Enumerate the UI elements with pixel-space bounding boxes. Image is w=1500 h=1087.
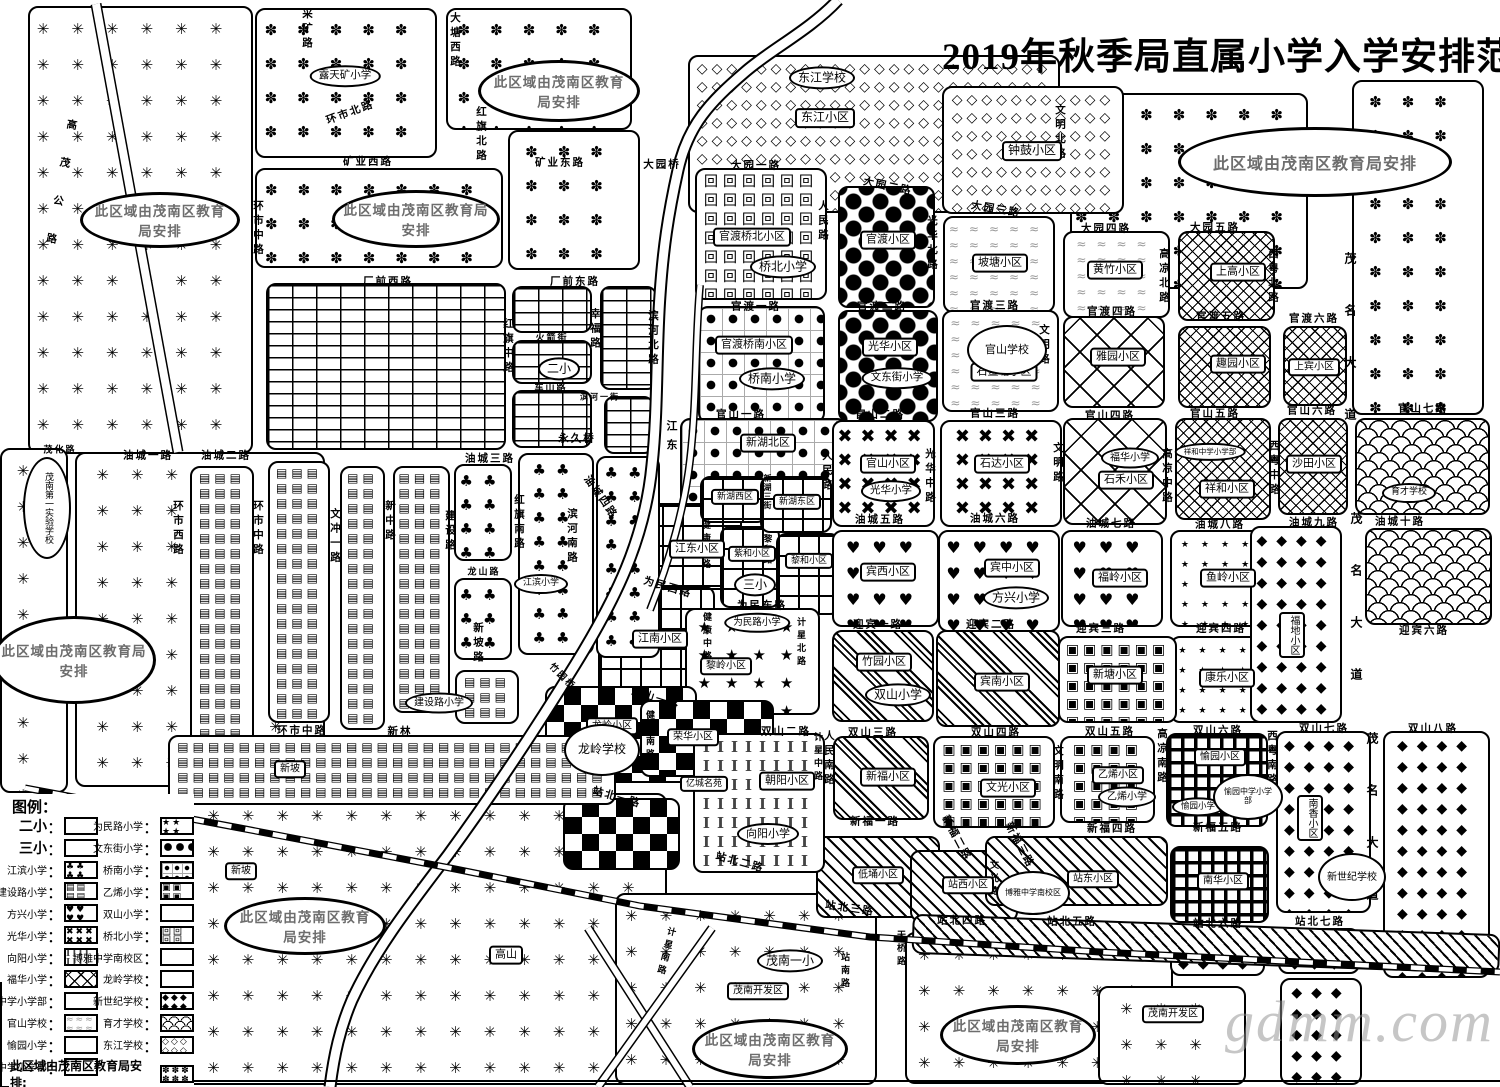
legend-footer: 此区域由茂南区教育局安排: ✽✽✽✽✽✽✽✽✽✽✽✽✽✽✽✽✽✽✽✽✽✽✽✽✽✽… xyxy=(10,1057,194,1087)
legend: 图例： 二小： 三小： 江滨小学：♣♣♣♣♣♣♣♣♣♣♣♣♣♣♣♣♣♣♣♣♣♣♣… xyxy=(2,794,194,1086)
road-label: 厂前西路 xyxy=(363,274,413,289)
block-label: 钟鼓小区 xyxy=(1002,141,1062,161)
legend-colon: ： xyxy=(143,1011,159,1035)
legend-swatch-maple: ♣♣♣♣♣♣♣♣♣♣♣♣♣♣♣♣♣♣♣♣♣♣♣♣♣♣♣♣♣♣♣♣♣♣♣♣♣♣♣♣… xyxy=(64,861,98,879)
block-label: 宾中小区 xyxy=(984,559,1040,578)
school-oval: 桥南小学 xyxy=(739,367,805,390)
road-label: 双山七路 xyxy=(1299,721,1349,736)
district-note-oval: 此区域由茂南区教育局安排 xyxy=(224,897,386,955)
road-label: 双山四路 xyxy=(971,725,1021,740)
block-label: 新坡 xyxy=(274,760,306,778)
road-label: 龙山路 xyxy=(467,565,500,578)
legend-item-label: 双山小学 xyxy=(103,906,143,921)
road-label: 油城一路 xyxy=(123,448,173,463)
block-label: 康乐小区 xyxy=(1199,669,1255,688)
legend-swatch-diamonds: ◆◆◆◆◆◆◆◆◆◆◆◆◆◆◆◆◆◆◆◆◆◆◆◆◆◆◆◆◆◆◆◆◆◆◆◆◆◆◆◆… xyxy=(160,992,194,1010)
legend-item-label: 桥北小学 xyxy=(103,928,143,943)
legend-colon: ： xyxy=(47,901,63,925)
district-note-oval: 此区域由茂南区教育局安排 xyxy=(1178,127,1452,197)
block-label: 紫和小区 xyxy=(728,546,776,562)
map-region xyxy=(512,286,592,333)
road-label: 迎宾二路 xyxy=(966,617,1016,632)
legend-item-label: 祥和中学小学部 xyxy=(0,993,47,1008)
block-label: 荣华小区 xyxy=(667,728,719,746)
road-label: 环市中路 xyxy=(277,723,327,738)
bridge-label: 永久桥 xyxy=(558,431,596,446)
school-oval: 桥北小学 xyxy=(750,255,816,278)
school-oval: 茂南一小 xyxy=(757,949,823,972)
legend-colon: ： xyxy=(47,814,63,838)
legend-item-label: 建设路小学 xyxy=(0,884,47,899)
map-region xyxy=(563,798,680,870)
map-region: ♣♣♣♣♣♣♣♣♣♣♣♣♣♣♣♣♣♣♣♣♣♣♣♣♣♣♣♣♣♣♣♣♣♣♣♣♣♣♣♣… xyxy=(454,464,512,561)
road-label: 高凉中路 xyxy=(1160,448,1175,506)
road-label: 油城九路 xyxy=(1289,515,1339,530)
legend-swatch-circle-chain: ◇◇◇◇◇◇◇◇◇◇◇◇◇◇◇◇◇◇◇◇◇◇◇◇◇◇◇◇◇◇◇◇◇◇◇◇◇◇◇◇… xyxy=(160,1036,194,1054)
legend-colon: ： xyxy=(47,1033,63,1057)
road-label: 油城十路 xyxy=(1375,514,1425,529)
block-label: 官山小区 xyxy=(860,455,916,474)
legend-footer-text: 此区域由茂南区教育局安排: xyxy=(10,1057,155,1087)
road-label: 迎宾四路 xyxy=(1196,621,1246,636)
road-label: 天桥路 xyxy=(894,930,907,969)
road-label: 油城三路 xyxy=(465,451,515,466)
block-label: 愉园小区 xyxy=(1194,748,1246,766)
legend-item-label: 文东街小学 xyxy=(93,840,143,855)
road-label: 站北七路 xyxy=(1295,914,1345,929)
legend-swatch-checker xyxy=(160,970,194,988)
road-label: 站北六路 xyxy=(1193,916,1243,931)
road-label: 新福四路 xyxy=(1087,821,1137,836)
map-region: ✽✽✽✽✽✽✽✽✽✽✽✽✽✽✽✽✽✽✽✽✽✽✽✽✽✽✽✽✽✽✽✽✽✽✽✽✽✽✽✽… xyxy=(508,130,640,270)
block-label: 坡塘小区 xyxy=(972,254,1028,273)
district-note-oval: 此区域由茂南区教育局安排 xyxy=(692,1019,848,1079)
road-label: 油城八路 xyxy=(1195,517,1245,532)
road-label: 茂名大道 xyxy=(1364,732,1381,940)
road-label: 官山二路 xyxy=(855,407,905,422)
map-region: ▤▤▤▤▤▤▤▤▤▤▤▤▤▤▤▤▤▤▤▤▤▤▤▤▤▤▤▤▤▤▤▤▤▤▤▤▤▤▤▤… xyxy=(168,735,616,805)
road-label: 幸福路 xyxy=(588,308,603,352)
block-label: 宾南小区 xyxy=(974,673,1030,692)
road-label: 人民南路 xyxy=(822,730,837,788)
road-label: 矿业西路 xyxy=(343,154,393,169)
block-label: 官渡小区 xyxy=(860,231,916,250)
road-label: 站北四路 xyxy=(937,913,987,928)
road-label: 西粤中路 xyxy=(1267,440,1282,498)
block-label: 新湖西区 xyxy=(711,489,759,505)
block-label: 官渡桥南小区 xyxy=(715,336,793,355)
road-label: 官渡三路 xyxy=(970,298,1020,313)
legend-colon: ： xyxy=(143,989,159,1013)
legend-left-column: 二小： 三小： 江滨小学：♣♣♣♣♣♣♣♣♣♣♣♣♣♣♣♣♣♣♣♣♣♣♣♣♣♣♣… xyxy=(6,816,98,1076)
road-label: 官山五路 xyxy=(1190,406,1240,421)
road-label: 新林 xyxy=(388,724,413,739)
legend-item-label: 光华小学 xyxy=(7,928,47,943)
road-label: 光华北路 xyxy=(925,215,940,273)
road-label: 红旗北路 xyxy=(474,106,489,164)
legend-swatch-basket xyxy=(64,1036,98,1054)
legend-item-label: 三小 xyxy=(19,838,47,858)
block-label: 上宾小区 xyxy=(1288,358,1340,376)
map-region: ✳✳✳✳✳✳✳✳✳✳✳✳✳✳✳✳✳✳✳✳✳✳✳✳✳✳✳✳✳✳✳✳✳✳✳✳✳✳✳✳… xyxy=(1098,986,1246,1085)
road-label: 迎宾六路 xyxy=(1399,623,1449,638)
legend-title: 图例： xyxy=(12,796,194,817)
block-label: 官渡桥北小区 xyxy=(713,228,791,247)
school-oval: 乙烯小学 xyxy=(1098,787,1156,808)
road-label: 矿业东路 xyxy=(535,155,585,170)
road-label: 高凉北路 xyxy=(1157,248,1172,306)
district-note-oval: 此区域由茂南区教育局安排 xyxy=(478,60,640,122)
road-label: 新坡路 xyxy=(471,622,486,666)
legend-colon: ： xyxy=(47,989,63,1013)
block-label: 新湖东区 xyxy=(773,494,821,510)
block-label: 新坡 xyxy=(225,862,257,880)
road-label: 官渡五路 xyxy=(1196,309,1246,324)
school-oval: 露天矿小学 xyxy=(310,65,381,87)
road-label: 迎宾三路 xyxy=(1076,621,1126,636)
map-region xyxy=(266,283,506,450)
school-oval: 二小 xyxy=(538,357,580,380)
legend-colon: ： xyxy=(143,879,159,903)
map-region: IIIIIIIIIIIIIIIIIIIIIIIIIIIIIIIIIIIIIIII… xyxy=(693,733,825,873)
block-label: 朝阳小区 xyxy=(759,772,815,791)
legend-item-label: 为民路小学 xyxy=(93,818,143,833)
road-label: 红旗中路 xyxy=(501,318,516,376)
school-oval: 方兴小学 xyxy=(983,586,1049,609)
school-oval: 新世纪学校 xyxy=(1318,853,1386,901)
city-school-zone-map: ✳✳✳✳✳✳✳✳✳✳✳✳✳✳✳✳✳✳✳✳✳✳✳✳✳✳✳✳✳✳✳✳✳✳✳✳✳✳✳✳… xyxy=(0,0,1500,1087)
road-label: 滨河南路 xyxy=(565,508,580,566)
school-oval: 愉园中学小学部 xyxy=(1213,774,1283,820)
road-label: 官渡一路 xyxy=(731,299,781,314)
road-label: 光华中路 xyxy=(923,448,938,506)
road-label: 为民东路 xyxy=(737,598,787,613)
school-oval: 三小 xyxy=(734,573,776,596)
school-oval: 东江学校 xyxy=(789,66,855,89)
block-label: 乙烯小区 xyxy=(1092,766,1144,784)
block-label: 高山 xyxy=(489,946,523,965)
map-region: ▤▤▤▤▤▤▤▤▤▤▤▤▤▤▤▤▤▤▤▤▤▤▤▤▤▤▤▤▤▤▤▤▤▤▤▤▤▤▤▤… xyxy=(190,466,254,758)
legend-swatch-stars: ★★★★★★★★★★★★★★★★★★★★★★★★★★★★★★★★★★★★★★★★… xyxy=(160,817,194,835)
legend-colon: ： xyxy=(47,836,63,860)
block-label: 茂南开发区 xyxy=(727,982,789,1000)
legend-item-label: 育才学校 xyxy=(103,1015,143,1030)
block-label: 新塘小区 xyxy=(1087,666,1143,685)
legend-item-label: 二小 xyxy=(19,816,47,836)
legend-swatch-flower: ✽✽✽✽✽✽✽✽✽✽✽✽✽✽✽✽✽✽✽✽✽✽✽✽✽✽✽✽✽✽✽✽✽✽✽✽✽✽✽✽… xyxy=(160,1065,194,1083)
block-label: 新福小区 xyxy=(860,768,916,787)
legend-colon: ： xyxy=(47,879,63,903)
map-region: ♣♣♣♣♣♣♣♣♣♣♣♣♣♣♣♣♣♣♣♣♣♣♣♣♣♣♣♣♣♣♣♣♣♣♣♣♣♣♣♣… xyxy=(596,456,660,658)
map-region xyxy=(832,630,934,722)
block-label: 雅园小区 xyxy=(1090,348,1146,367)
legend-colon: ： xyxy=(143,814,159,838)
map-region xyxy=(604,396,654,454)
map-region xyxy=(698,306,825,423)
road-label: 滨河一街 xyxy=(580,392,620,403)
road-label: 官山七路 xyxy=(1398,401,1448,416)
school-oval: 江滨小学 xyxy=(514,574,568,594)
block-label: 祥和小区 xyxy=(1199,480,1255,499)
legend-swatch-hearts: ♥♥♥♥♥♥♥♥♥♥♥♥♥♥♥♥♥♥♥♥♥♥♥♥♥♥♥♥♥♥♥♥♥♥♥♥♥♥♥♥… xyxy=(64,904,98,922)
district-note-oval: 此区域由茂南区教育局安排 xyxy=(80,192,240,248)
legend-swatch-hatch xyxy=(160,948,194,966)
block-label: 宾西小区 xyxy=(860,563,916,582)
road-label: 双山八路 xyxy=(1408,721,1458,736)
map-region: ▤▤▤▤▤▤▤▤▤▤▤▤▤▤▤▤▤▤▤▤▤▤▤▤▤▤▤▤▤▤▤▤▤▤▤▤▤▤▤▤… xyxy=(340,466,385,730)
road-label: 人民路 xyxy=(820,450,835,494)
school-oval: 茂南第一实验学校 xyxy=(23,457,71,559)
block-label: 南香小区 xyxy=(1297,795,1323,841)
road-label: 新福一路 xyxy=(850,814,900,829)
river-label: 江东 xyxy=(663,420,679,458)
road-label: 站南路 xyxy=(838,952,851,991)
block-label: 福地小区 xyxy=(1279,612,1305,658)
district-note-oval: 此区域由茂南区教育局安排 xyxy=(940,1005,1096,1065)
block-label: 黎和小区 xyxy=(785,553,833,569)
road-label: 官渡六路 xyxy=(1289,311,1339,326)
block-label: 亿城名苑 xyxy=(680,776,728,792)
school-oval: 建设路小学 xyxy=(405,693,473,714)
road-label: 官山三路 xyxy=(970,406,1020,421)
school-oval: 育才学校 xyxy=(1382,483,1436,503)
road-label: 双山三路 xyxy=(848,725,898,740)
road-label: 迎宾一路 xyxy=(853,617,903,632)
legend-swatch-wiggle: ≈≈≈≈≈≈≈≈≈≈≈≈≈≈≈≈≈≈≈≈≈≈≈≈≈≈≈≈≈≈≈≈≈≈≈≈≈≈≈≈… xyxy=(64,1014,98,1032)
block-label: 低埇小区 xyxy=(852,866,904,884)
road-label: 计星北路 xyxy=(794,617,807,669)
legend-swatch-octagon xyxy=(160,861,194,879)
school-oval: 祥和中学小学部 xyxy=(1175,443,1246,461)
block-label: 趣园小区 xyxy=(1210,355,1266,374)
block-label: 鱼岭小区 xyxy=(1200,569,1256,588)
legend-colon: ： xyxy=(143,858,159,882)
legend-swatch-stripes xyxy=(160,904,194,922)
school-oval: 龙岭学校 xyxy=(564,724,640,776)
road-label: 健康中路 xyxy=(700,612,713,664)
block-label: 江南小区 xyxy=(632,630,688,649)
road-label: 双山五路 xyxy=(1085,724,1135,739)
road-label: 双山六路 xyxy=(1193,723,1243,738)
block-label: 上高小区 xyxy=(1210,263,1266,282)
road-label: 茂名大道 xyxy=(1348,512,1365,720)
legend-item-label: 江滨小学 xyxy=(7,862,47,877)
school-oval: 向阳小学 xyxy=(737,823,799,845)
block-label: 沙田小区 xyxy=(1286,455,1342,474)
road-label: 高凉南路 xyxy=(1155,728,1170,786)
block-label: 东江小区 xyxy=(795,108,855,128)
road-label: 火箭街 xyxy=(535,331,568,344)
legend-item-label: 向阳小学 xyxy=(7,950,47,965)
road-label: 新中路 xyxy=(383,500,398,544)
block-label: 黎岭小区 xyxy=(700,657,752,675)
road-label: 建设路 xyxy=(443,510,458,554)
road-label: 西粤北路 xyxy=(1266,248,1281,306)
map-region xyxy=(838,310,938,422)
legend-swatch-scales xyxy=(160,1014,194,1032)
road-label: 油城五路 xyxy=(855,512,905,527)
legend-swatch-lattice xyxy=(64,970,98,988)
block-label: 站东小区 xyxy=(1067,870,1119,888)
map-region xyxy=(1175,418,1271,520)
block-label: 江东小区 xyxy=(669,540,725,559)
block-label: 光华小区 xyxy=(862,338,918,357)
school-oval: 光华小学 xyxy=(861,480,921,502)
road-label: 官山六路 xyxy=(1287,403,1337,418)
road-label: 健康南路 xyxy=(643,710,656,762)
map-region: ▤▤▤▤▤▤▤▤▤▤▤▤▤▤▤▤▤▤▤▤▤▤▤▤▤▤▤▤▤▤▤▤▤▤▤▤▤▤▤▤… xyxy=(393,466,450,713)
road-label: 滨河北路 xyxy=(646,310,661,368)
road-label: 油城二路 xyxy=(201,448,251,463)
road-label: 新福五路 xyxy=(1193,820,1243,835)
school-oval: 双山小学 xyxy=(865,683,931,706)
road-label: 环市西路 xyxy=(171,500,186,558)
legend-swatch-crosses: ✖✖✖✖✖✖✖✖✖✖✖✖✖✖✖✖✖✖✖✖✖✖✖✖✖✖✖✖✖✖✖✖✖✖✖✖✖✖✖✖… xyxy=(64,926,98,944)
block-label: 石禾小区 xyxy=(1098,471,1154,490)
legend-colon: ： xyxy=(47,858,63,882)
legend-swatch-greek-key: 回回回回回回回回回回回回回回回回回回回回回回回回回回回回回回回回回回回回回回回回… xyxy=(160,926,194,944)
legend-swatch-squares: ▣▣▣▣▣▣▣▣▣▣▣▣▣▣▣▣▣▣▣▣▣▣▣▣▣▣▣▣▣▣▣▣▣▣▣▣▣▣▣▣… xyxy=(160,882,194,900)
school-oval: 博雅中学南校区 xyxy=(996,871,1070,915)
legend-colon: ： xyxy=(143,967,159,991)
block-label: 新湖北区 xyxy=(740,434,796,453)
road-label: 茂名大道 xyxy=(1342,252,1359,460)
road-label: 大园一路 xyxy=(731,158,781,173)
road-label: 文明路 xyxy=(1051,442,1066,486)
road-label: 油城七路 xyxy=(1086,516,1136,531)
legend-item-label: 福华小学 xyxy=(7,971,47,986)
block-label: 文光小区 xyxy=(980,779,1036,798)
legend-item-label: 新世纪学校 xyxy=(93,993,143,1008)
legend-swatch-bars: ▤▤▤▤▤▤▤▤▤▤▤▤▤▤▤▤▤▤▤▤▤▤▤▤▤▤▤▤▤▤▤▤▤▤▤▤▤▤▤▤… xyxy=(64,882,98,900)
road-label: 站北五路 xyxy=(1047,914,1097,929)
block-label: 福岭小区 xyxy=(1092,569,1148,588)
legend-item-label: 博雅中学南校区 xyxy=(73,950,143,965)
legend-item-label: 东江学校 xyxy=(103,1037,143,1052)
road-label: 双山二路 xyxy=(761,724,811,739)
road-label: 新湖三街 xyxy=(762,474,773,510)
road-label: 大园四路 xyxy=(1081,221,1131,236)
legend-swatch-big-dots xyxy=(160,839,194,857)
road-label: 大园五路 xyxy=(1190,220,1240,235)
road-label: 人民路 xyxy=(816,200,831,244)
block-label: 黄竹小区 xyxy=(1087,261,1143,280)
legend-colon: ： xyxy=(143,923,159,947)
road-label: 官山一路 xyxy=(716,407,766,422)
legend-item-label: 桥南小学 xyxy=(103,862,143,877)
legend-item-label: 乙烯小学 xyxy=(103,884,143,899)
school-oval: 文东街小学 xyxy=(862,367,933,389)
road-label: 文冲一路 xyxy=(328,508,343,566)
legend-colon: ： xyxy=(47,945,63,969)
map-title: 2019年秋季局直属小学入学安排范围图 xyxy=(942,26,1500,80)
legend-item-label: 愉园小学 xyxy=(7,1037,47,1052)
road-label: 车山路 xyxy=(534,381,567,394)
road-label: 茂化路 xyxy=(43,443,76,456)
road-label: 文明南路 xyxy=(1051,745,1066,803)
legend-item-label: 官山学校 xyxy=(7,1015,47,1030)
road-label: 油城六路 xyxy=(970,511,1020,526)
road-label: 采矿路 xyxy=(300,8,315,52)
road-label: 官山四路 xyxy=(1085,408,1135,423)
school-oval: 官山学校 xyxy=(967,325,1047,375)
road-label: 环市中路 xyxy=(251,200,266,258)
road-label: 大塘西路 xyxy=(448,12,463,70)
road-label: 官渡四路 xyxy=(1087,304,1137,319)
legend-colon: ： xyxy=(47,1011,63,1035)
legend-colon: ： xyxy=(143,1033,159,1057)
road-label: 红旗南路 xyxy=(512,494,527,552)
legend-colon: ： xyxy=(143,945,159,969)
block-label: 石达小区 xyxy=(974,455,1030,474)
district-note-oval: 此区域由茂南区教育局安排 xyxy=(332,190,500,248)
block-label: 竹园小区 xyxy=(856,653,912,672)
road-label: 厂前东路 xyxy=(550,274,600,289)
legend-item-label: 龙岭学校 xyxy=(103,971,143,986)
legend-colon: ： xyxy=(47,967,63,991)
road-label: 环市中路 xyxy=(251,500,266,558)
block-label: 茂南开发区 xyxy=(1142,1005,1204,1023)
road-label: 大园桥 xyxy=(643,157,681,172)
map-region xyxy=(1365,528,1492,625)
road-label: 官渡二路 xyxy=(857,299,907,314)
legend-colon: ： xyxy=(47,923,63,947)
school-oval: 福华小学 xyxy=(1101,448,1159,469)
block-label: 南华小区 xyxy=(1197,872,1249,890)
watermark: gdmm.com xyxy=(1225,988,1494,1055)
legend-colon: ： xyxy=(143,836,159,860)
map-region: ▤▤▤▤▤▤▤▤▤▤▤▤▤▤▤▤▤▤▤▤▤▤▤▤▤▤▤▤▤▤▤▤▤▤▤▤▤▤▤▤… xyxy=(268,461,330,723)
block-label: 站西小区 xyxy=(942,876,994,894)
legend-right-column: 为民路小学：★★★★★★★★★★★★★★★★★★★★★★★★★★★★★★★★★★… xyxy=(98,816,194,1054)
legend-item-label: 方兴小学 xyxy=(7,906,47,921)
legend-colon: ： xyxy=(143,901,159,925)
